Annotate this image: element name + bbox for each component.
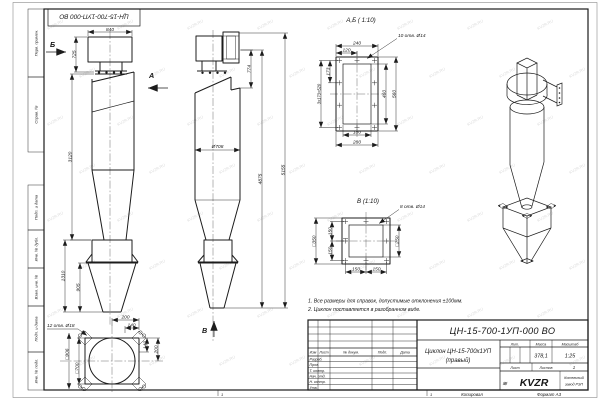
dim-725: 725 (72, 50, 78, 58)
tb-row-utv: Утв. (310, 386, 318, 390)
footer-format: Формат А3 (537, 392, 562, 397)
tb-row-razrab: Разраб. (310, 358, 323, 362)
dim-906: □906 (65, 348, 71, 359)
tb-col-data: Дата (399, 351, 409, 355)
dim-280: 280 (352, 140, 361, 146)
tb-part-name-2: (правый) (446, 357, 471, 364)
dim-173: 173 (326, 67, 332, 75)
tb-row-nkontr: Н. контр. (310, 380, 326, 384)
side-label-inv-dubl: Инв. № дубл. (33, 237, 38, 262)
dim-150-bottom-2: 150 (372, 267, 380, 273)
dim-200-top: 200 (120, 314, 129, 320)
tb-col-podp: Подп. (378, 351, 388, 355)
stamp-doc-number: ЦН-15-700-1УП-000 ВО (59, 13, 128, 20)
detail-ab-title: А,Б ( 1:10) (345, 17, 375, 24)
dim-840: 840 (106, 27, 114, 33)
tb-masshtab-label: Масштаб (562, 342, 580, 346)
side-label-sprav: Справ. № (34, 105, 39, 124)
dim-560: 560 (392, 90, 398, 98)
footer-zone-1: 1 (221, 392, 223, 397)
tb-part-name: Циклон ЦН-15-700х1УП (425, 349, 492, 355)
dim-1310: 1310 (61, 270, 67, 281)
tb-scale-value: 1:25 (565, 354, 576, 360)
dim-774: 774 (247, 65, 253, 73)
side-label-perv-primen: Перв. примен. (33, 30, 38, 57)
dim-150-left-1: 150 (328, 227, 334, 235)
v-holes-note: 8 отв. Ø14 (400, 204, 425, 210)
tb-row-nachotd: Нач. отд. (310, 375, 326, 379)
dim-460: 460 (382, 90, 388, 98)
dim-180: 180 (353, 130, 361, 136)
ab-holes-note: 10 отв. Ø14 (398, 33, 426, 39)
tb-logo: KVZR (520, 377, 549, 389)
dim-250: □250 (395, 235, 401, 246)
view-arrow-label-b: Б (50, 40, 55, 49)
dim-150-left-2: 150 (328, 246, 334, 254)
tb-lit-label: Лит. (510, 342, 519, 346)
side-label-podp-data-1: Подп. и дата (33, 194, 38, 220)
dim-4875: 4875 (258, 173, 264, 184)
dim-200-right: 200 (154, 345, 160, 354)
bottom-holes-note: 12 отв. Ø18 (47, 323, 75, 329)
tb-col-izm: Изм (310, 351, 317, 355)
dim-240: 240 (352, 41, 361, 47)
view-arrow-label-a: А (148, 71, 154, 80)
tb-logo-mark-icon: ≋ (502, 381, 508, 388)
dim-150-bottom-1: 150 (352, 267, 360, 273)
dim-700: □700 (75, 362, 81, 373)
tb-col-dokum: № докум. (343, 351, 359, 355)
dim-905: 905 (76, 283, 82, 291)
note-2: 2. Циклон поставляется в разобранном вид… (307, 307, 421, 313)
side-label-inv-podl: Инв. № подл. (33, 359, 38, 384)
dim-dia-708: Ø708 (211, 144, 224, 150)
dim-350: □350 (312, 235, 318, 246)
note-1: 1. Все размеры для справок, допустимые о… (308, 299, 463, 305)
drawing-sheet: KVZR.RUKVZR.RUKVZR.RUKVZR.RUKVZR.RUKVZR.… (0, 0, 600, 400)
tb-sheets-label: Листов (538, 366, 552, 370)
tb-doc-number: ЦН-15-700-1УП-000 ВО (450, 326, 556, 336)
side-label-podp-data-2: Подп. и дата (33, 316, 38, 342)
tb-row-tkontr: Т. контр. (310, 369, 326, 373)
dim-120: 120 (342, 48, 350, 54)
dim-520: 3x173=520 (317, 83, 322, 104)
tb-mass-value: 378,1 (534, 354, 548, 360)
detail-v-title: В (1:10) (357, 198, 379, 205)
side-label-vzam-inv: Взам. инв. № (33, 274, 38, 299)
view-arrow-label-v: В (202, 326, 207, 335)
tb-row-prov: Пров. (310, 363, 319, 367)
footer-zone-2: 1 (430, 392, 432, 397)
tb-company-2: завод РЭП (564, 383, 583, 387)
dim-140-top: 140 (127, 323, 135, 329)
dim-5155: 5155 (281, 164, 287, 175)
footer-copied: Копировал (461, 392, 483, 397)
dim-140-right: 140 (143, 341, 149, 349)
tb-massa-label: Масса (536, 342, 547, 346)
tb-sheet-label: Лист (509, 366, 519, 370)
tb-col-list: Лист (318, 351, 328, 355)
tb-company-1: Котельный (564, 376, 584, 380)
dim-3120: 3120 (68, 151, 74, 162)
drawing-canvas: KVZR.RUKVZR.RUKVZR.RUKVZR.RUKVZR.RUKVZR.… (0, 0, 600, 400)
